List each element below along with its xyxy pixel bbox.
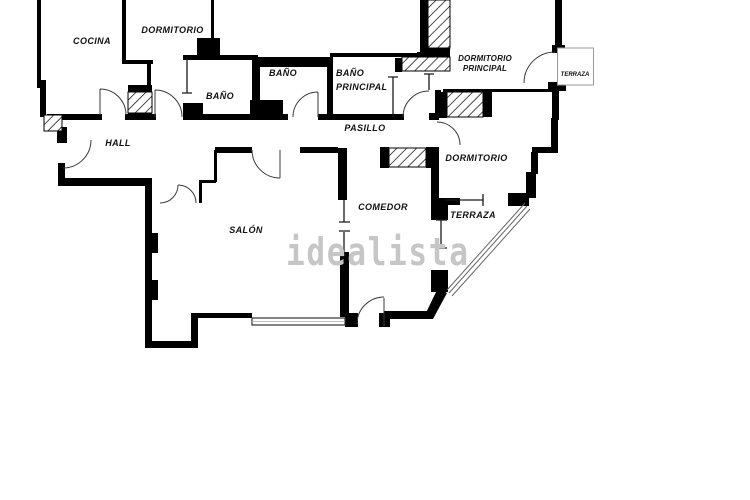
room-label-pasillo: PASILLO [340, 123, 390, 133]
window-hatch-comedor [389, 148, 426, 167]
room-label-terraza-superior: TERRAZA [556, 72, 594, 78]
room-label-dormitorio-superior: DORMITORIO [140, 25, 205, 35]
walls [37, 0, 566, 348]
room-label-dormitorio-principal-line2: PRINCIPAL [453, 64, 517, 74]
shaft-hatch-top [428, 0, 450, 48]
door-terraza-superior [524, 52, 555, 83]
door-bano-principal [403, 91, 429, 117]
room-label-terraza-inferior: TERRAZA [447, 210, 499, 220]
door-bano-central [293, 92, 318, 117]
room-label-bano-principal-line1: BAÑO [336, 66, 394, 80]
door-entrada [63, 140, 91, 168]
room-label-dormitorio-principal: DORMITORIO PRINCIPAL [453, 54, 517, 73]
room-label-bano-central: BAÑO [261, 68, 305, 78]
double-door-salon [160, 185, 196, 203]
door-bano-izquierdo [155, 90, 182, 117]
idealista-watermark: idealista [286, 230, 470, 274]
room-label-salon: SALÓN [221, 225, 271, 235]
room-label-dormitorio-derecho: DORMITORIO [444, 153, 509, 163]
door-dormitorio-derecho [437, 122, 460, 145]
floor-plan: COCINA DORMITORIO BAÑO BAÑO BAÑO PRINCIP… [0, 0, 750, 500]
window-hatch-dormitorio-principal [402, 57, 450, 71]
room-label-cocina: COCINA [70, 36, 114, 46]
room-label-comedor: COMEDOR [357, 202, 409, 212]
door-cocina [100, 89, 126, 115]
room-label-bano-principal: BAÑO PRINCIPAL [336, 66, 394, 94]
room-label-dormitorio-principal-line1: DORMITORIO [453, 54, 517, 64]
window-hatch-dormitorio [447, 92, 483, 117]
shaft-hatch-cocina [128, 92, 152, 113]
room-label-bano-principal-line2: PRINCIPAL [336, 80, 394, 94]
room-label-hall: HALL [102, 138, 134, 148]
terraza-superior-box [558, 48, 594, 85]
room-label-bano-izquierdo: BAÑO [198, 91, 242, 101]
shaft-hatch-entry [44, 115, 62, 131]
door-pasillo-salon [252, 150, 280, 178]
